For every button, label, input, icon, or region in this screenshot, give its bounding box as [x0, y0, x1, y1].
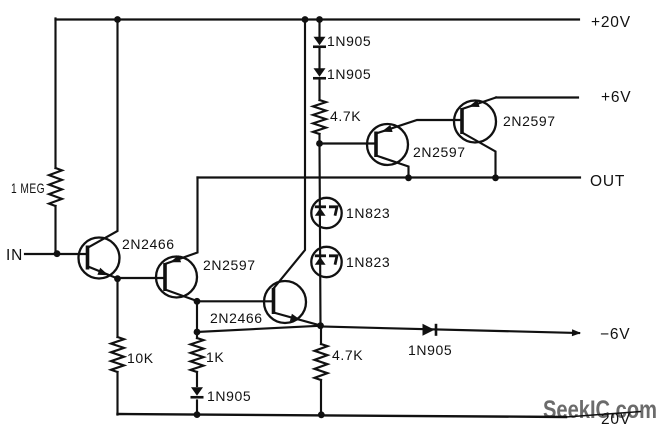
svg-text:1N905: 1N905: [207, 388, 251, 404]
svg-text:10K: 10K: [127, 350, 154, 366]
svg-text:1N905: 1N905: [327, 33, 371, 49]
svg-text:+6V: +6V: [601, 89, 631, 106]
svg-text:SeekIC.com: SeekIC.com: [543, 396, 657, 424]
svg-text:2N2597: 2N2597: [503, 113, 556, 129]
svg-text:1N905: 1N905: [327, 66, 371, 82]
svg-text:20V: 20V: [601, 411, 631, 428]
svg-text:1 MEG: 1 MEG: [11, 180, 45, 196]
svg-text:1N905: 1N905: [408, 342, 452, 358]
svg-text:2N2597: 2N2597: [413, 144, 466, 160]
svg-text:2N2466: 2N2466: [210, 310, 263, 326]
svg-text:+20V: +20V: [591, 14, 631, 31]
svg-text:4.7K: 4.7K: [330, 108, 361, 124]
svg-text:IN: IN: [6, 247, 23, 264]
svg-text:2N2466: 2N2466: [122, 236, 175, 252]
svg-text:1K: 1K: [206, 349, 224, 365]
svg-text:1N823: 1N823: [346, 205, 390, 221]
svg-text:2N2597: 2N2597: [203, 257, 256, 273]
svg-text:OUT: OUT: [590, 173, 625, 190]
svg-text:4.7K: 4.7K: [332, 347, 363, 363]
svg-text:1N823: 1N823: [346, 254, 390, 270]
svg-text:−6V: −6V: [600, 326, 630, 343]
